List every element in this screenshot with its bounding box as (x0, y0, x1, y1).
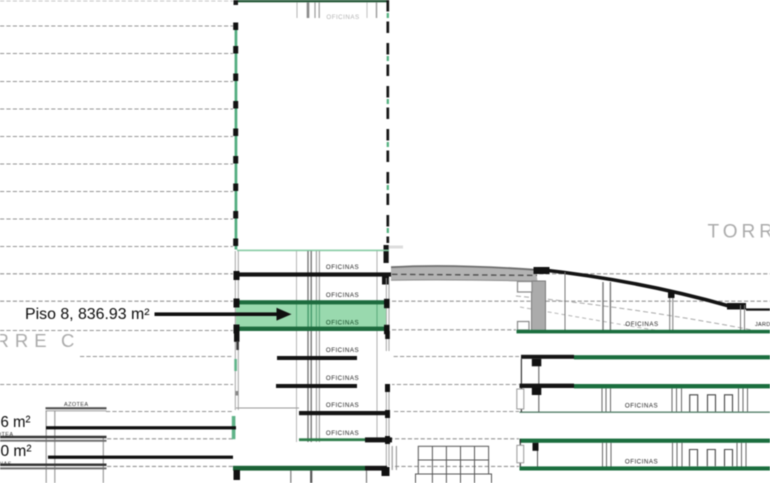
svg-text:OFICINAS: OFICINAS (326, 375, 359, 382)
svg-text:OFICINAS: OFICINAS (326, 292, 359, 299)
svg-text:Piso 8, 836.93 m²: Piso 8, 836.93 m² (25, 306, 150, 323)
svg-text:C: C (61, 330, 80, 351)
svg-text:OFICINAS: OFICINAS (326, 14, 359, 21)
svg-text:OFICINAS: OFICINAS (0, 461, 12, 467)
svg-text:OFICINAS: OFICINAS (326, 402, 359, 409)
svg-text:OFICINAS: OFICINAS (625, 403, 658, 410)
svg-text:AZOTEA: AZOTEA (64, 402, 88, 408)
svg-text:OFICINAS: OFICINAS (625, 321, 658, 328)
svg-text:OFICINAS: OFICINAS (326, 264, 359, 271)
svg-text:0 m²: 0 m² (1, 443, 32, 460)
svg-text:TORRE: TORRE (708, 221, 770, 242)
svg-text:JARD: JARD (755, 322, 770, 328)
svg-text:OFICINAS: OFICINAS (326, 430, 359, 437)
svg-text:OFICINAS: OFICINAS (326, 347, 359, 354)
svg-text:6 m²: 6 m² (1, 414, 31, 431)
svg-text:OFICINAS: OFICINAS (625, 459, 658, 466)
svg-text:RRE: RRE (0, 330, 53, 351)
svg-text:AZOTEA: AZOTEA (0, 432, 13, 438)
svg-text:OFICINAS: OFICINAS (326, 320, 359, 327)
